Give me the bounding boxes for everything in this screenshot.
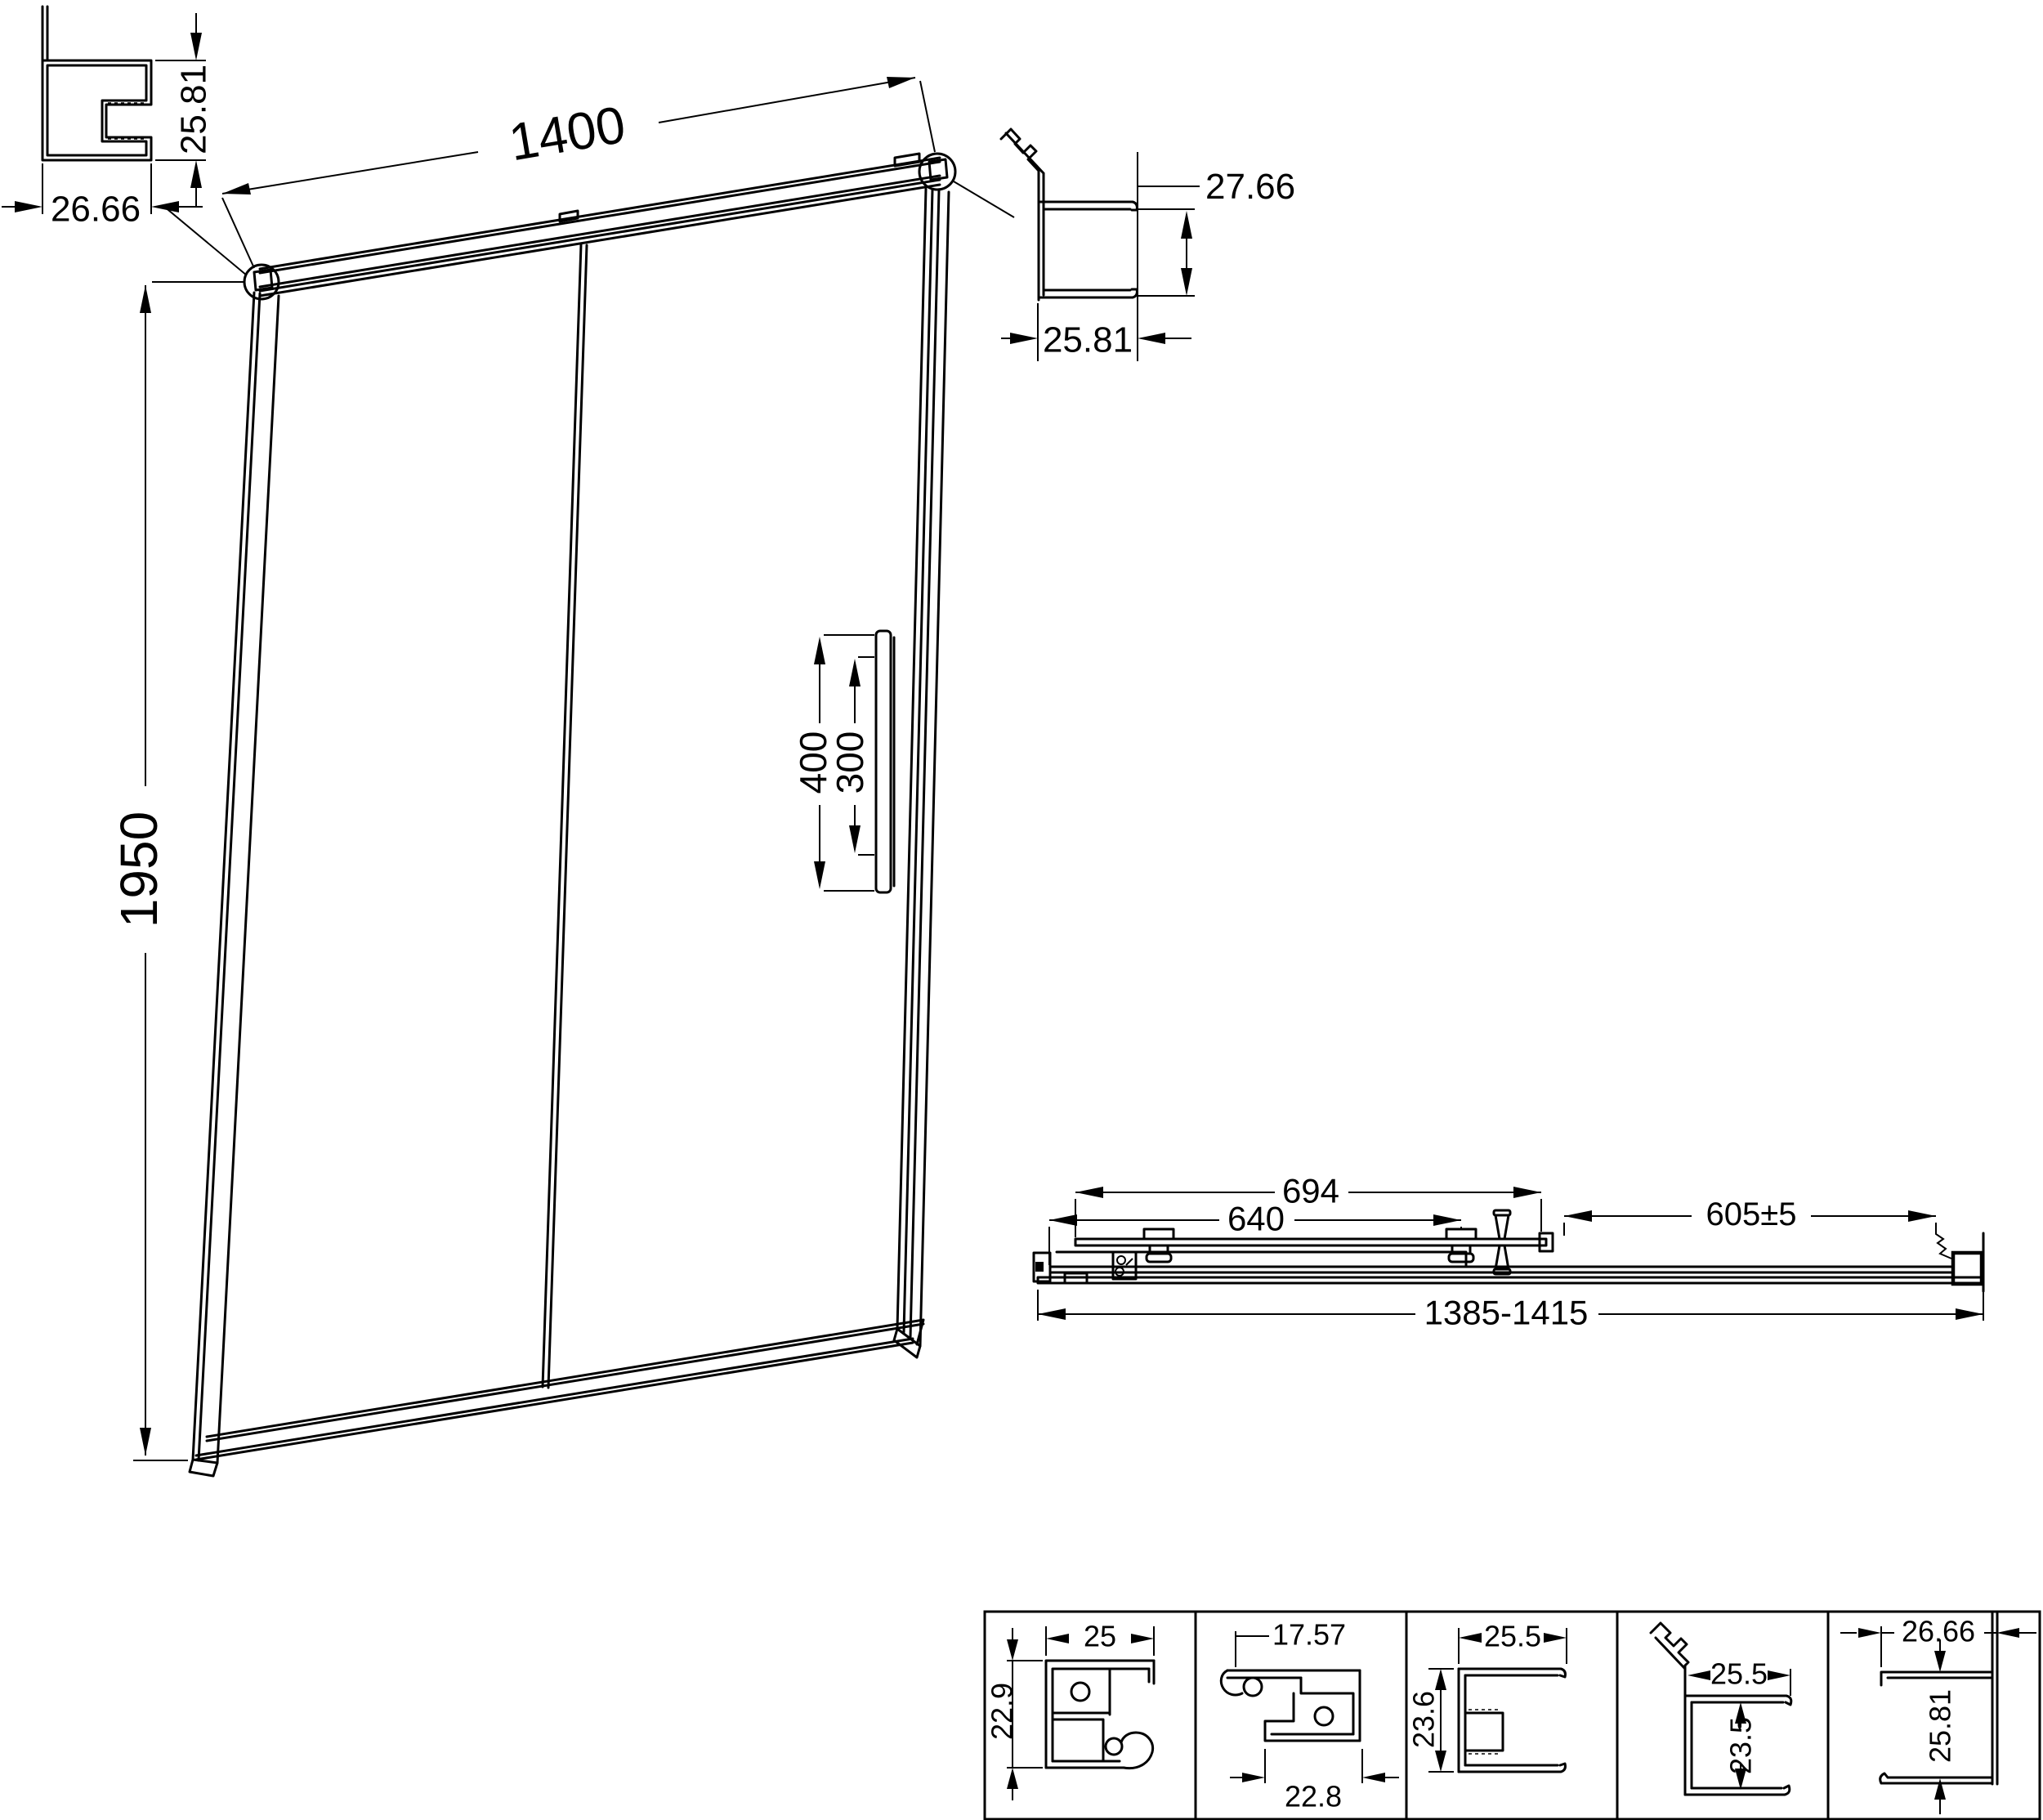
screw-boss: [1106, 1738, 1122, 1755]
dim-box1-side: 22.9: [986, 1683, 1019, 1740]
technical-drawing-page: 26.66 25.81 1400: [0, 0, 2043, 1820]
leader-top-left: [163, 206, 247, 275]
detail-box-hook-profile: 25.5 23.5: [1651, 1623, 1791, 1795]
wall-profile-right-plan: [1953, 1233, 1983, 1291]
dim-box2-side: 22.8: [1285, 1780, 1342, 1813]
detail-box-glass-channel: 26.66 25.81: [1840, 1613, 2036, 1814]
profile-detail-boxes: 25 22.9 17.57 22.8: [985, 1612, 2040, 1819]
detail-box-bottom-track: 25 22.9: [986, 1620, 1155, 1801]
hook-fin: [1651, 1623, 1688, 1666]
shower-door-technical-drawing: 26.66 25.81 1400: [0, 0, 2043, 1820]
bottom-track-plan: [1038, 1277, 1983, 1283]
dim-box3-side: 23.6: [1407, 1691, 1441, 1748]
detail-box-meeting-stiles: 17.57 22.8: [1221, 1618, 1399, 1813]
dim-box4-side: 23.5: [1724, 1717, 1758, 1774]
dim-box1-top: 25: [1084, 1620, 1116, 1653]
dim-tl-width: 26.66: [51, 190, 141, 230]
top-left-profile-detail: 26.66 25.81: [2, 7, 247, 275]
dim-box5-side: 25.81: [1924, 1689, 1957, 1763]
detail-box-wall-profile: 25.5 23.6: [1407, 1620, 1567, 1773]
top-right-profile-detail: 27.66 25.81: [1001, 129, 1295, 361]
plan-view: 694 640 605±5 1385-1415: [1034, 1172, 1983, 1332]
panel-divider: [543, 244, 587, 1388]
dim-panel-overall: 694: [1282, 1172, 1339, 1210]
screw-boss: [1244, 1678, 1262, 1696]
dim-tr-height: 27.66: [1205, 167, 1295, 207]
door-elevation: 1400 1950 400 300: [110, 77, 1014, 1476]
left-frame-foot: [190, 1460, 217, 1476]
dim-fixed-width: 605±5: [1706, 1196, 1797, 1232]
anti-jump-clip-right: [895, 154, 919, 166]
dim-tr-width: 25.81: [1043, 320, 1133, 360]
door-handle: [876, 631, 891, 892]
dim-box4-top: 25.5: [1710, 1657, 1768, 1691]
fixed-band-top: [1057, 1252, 1466, 1267]
leader-top-right: [954, 181, 1014, 217]
glass-fin: [1992, 1613, 1997, 1784]
dim-door-height: 1950: [110, 812, 168, 928]
hook-fin: [1001, 129, 1039, 300]
dim-glass-width: 640: [1227, 1200, 1285, 1238]
dim-box2-top: 17.57: [1272, 1618, 1346, 1652]
dim-overall-range: 1385-1415: [1424, 1294, 1589, 1332]
dim-handle-holes: 300: [829, 731, 871, 794]
screw-boss: [1315, 1707, 1333, 1725]
handle-knob-plan: [1494, 1210, 1510, 1274]
dim-box5-top: 26.66: [1902, 1615, 1975, 1648]
dim-box3-top: 25.5: [1484, 1620, 1541, 1653]
dim-door-width: 1400: [505, 95, 629, 172]
screw-boss: [1071, 1683, 1089, 1701]
dim-tl-height: 25.81: [174, 65, 214, 154]
